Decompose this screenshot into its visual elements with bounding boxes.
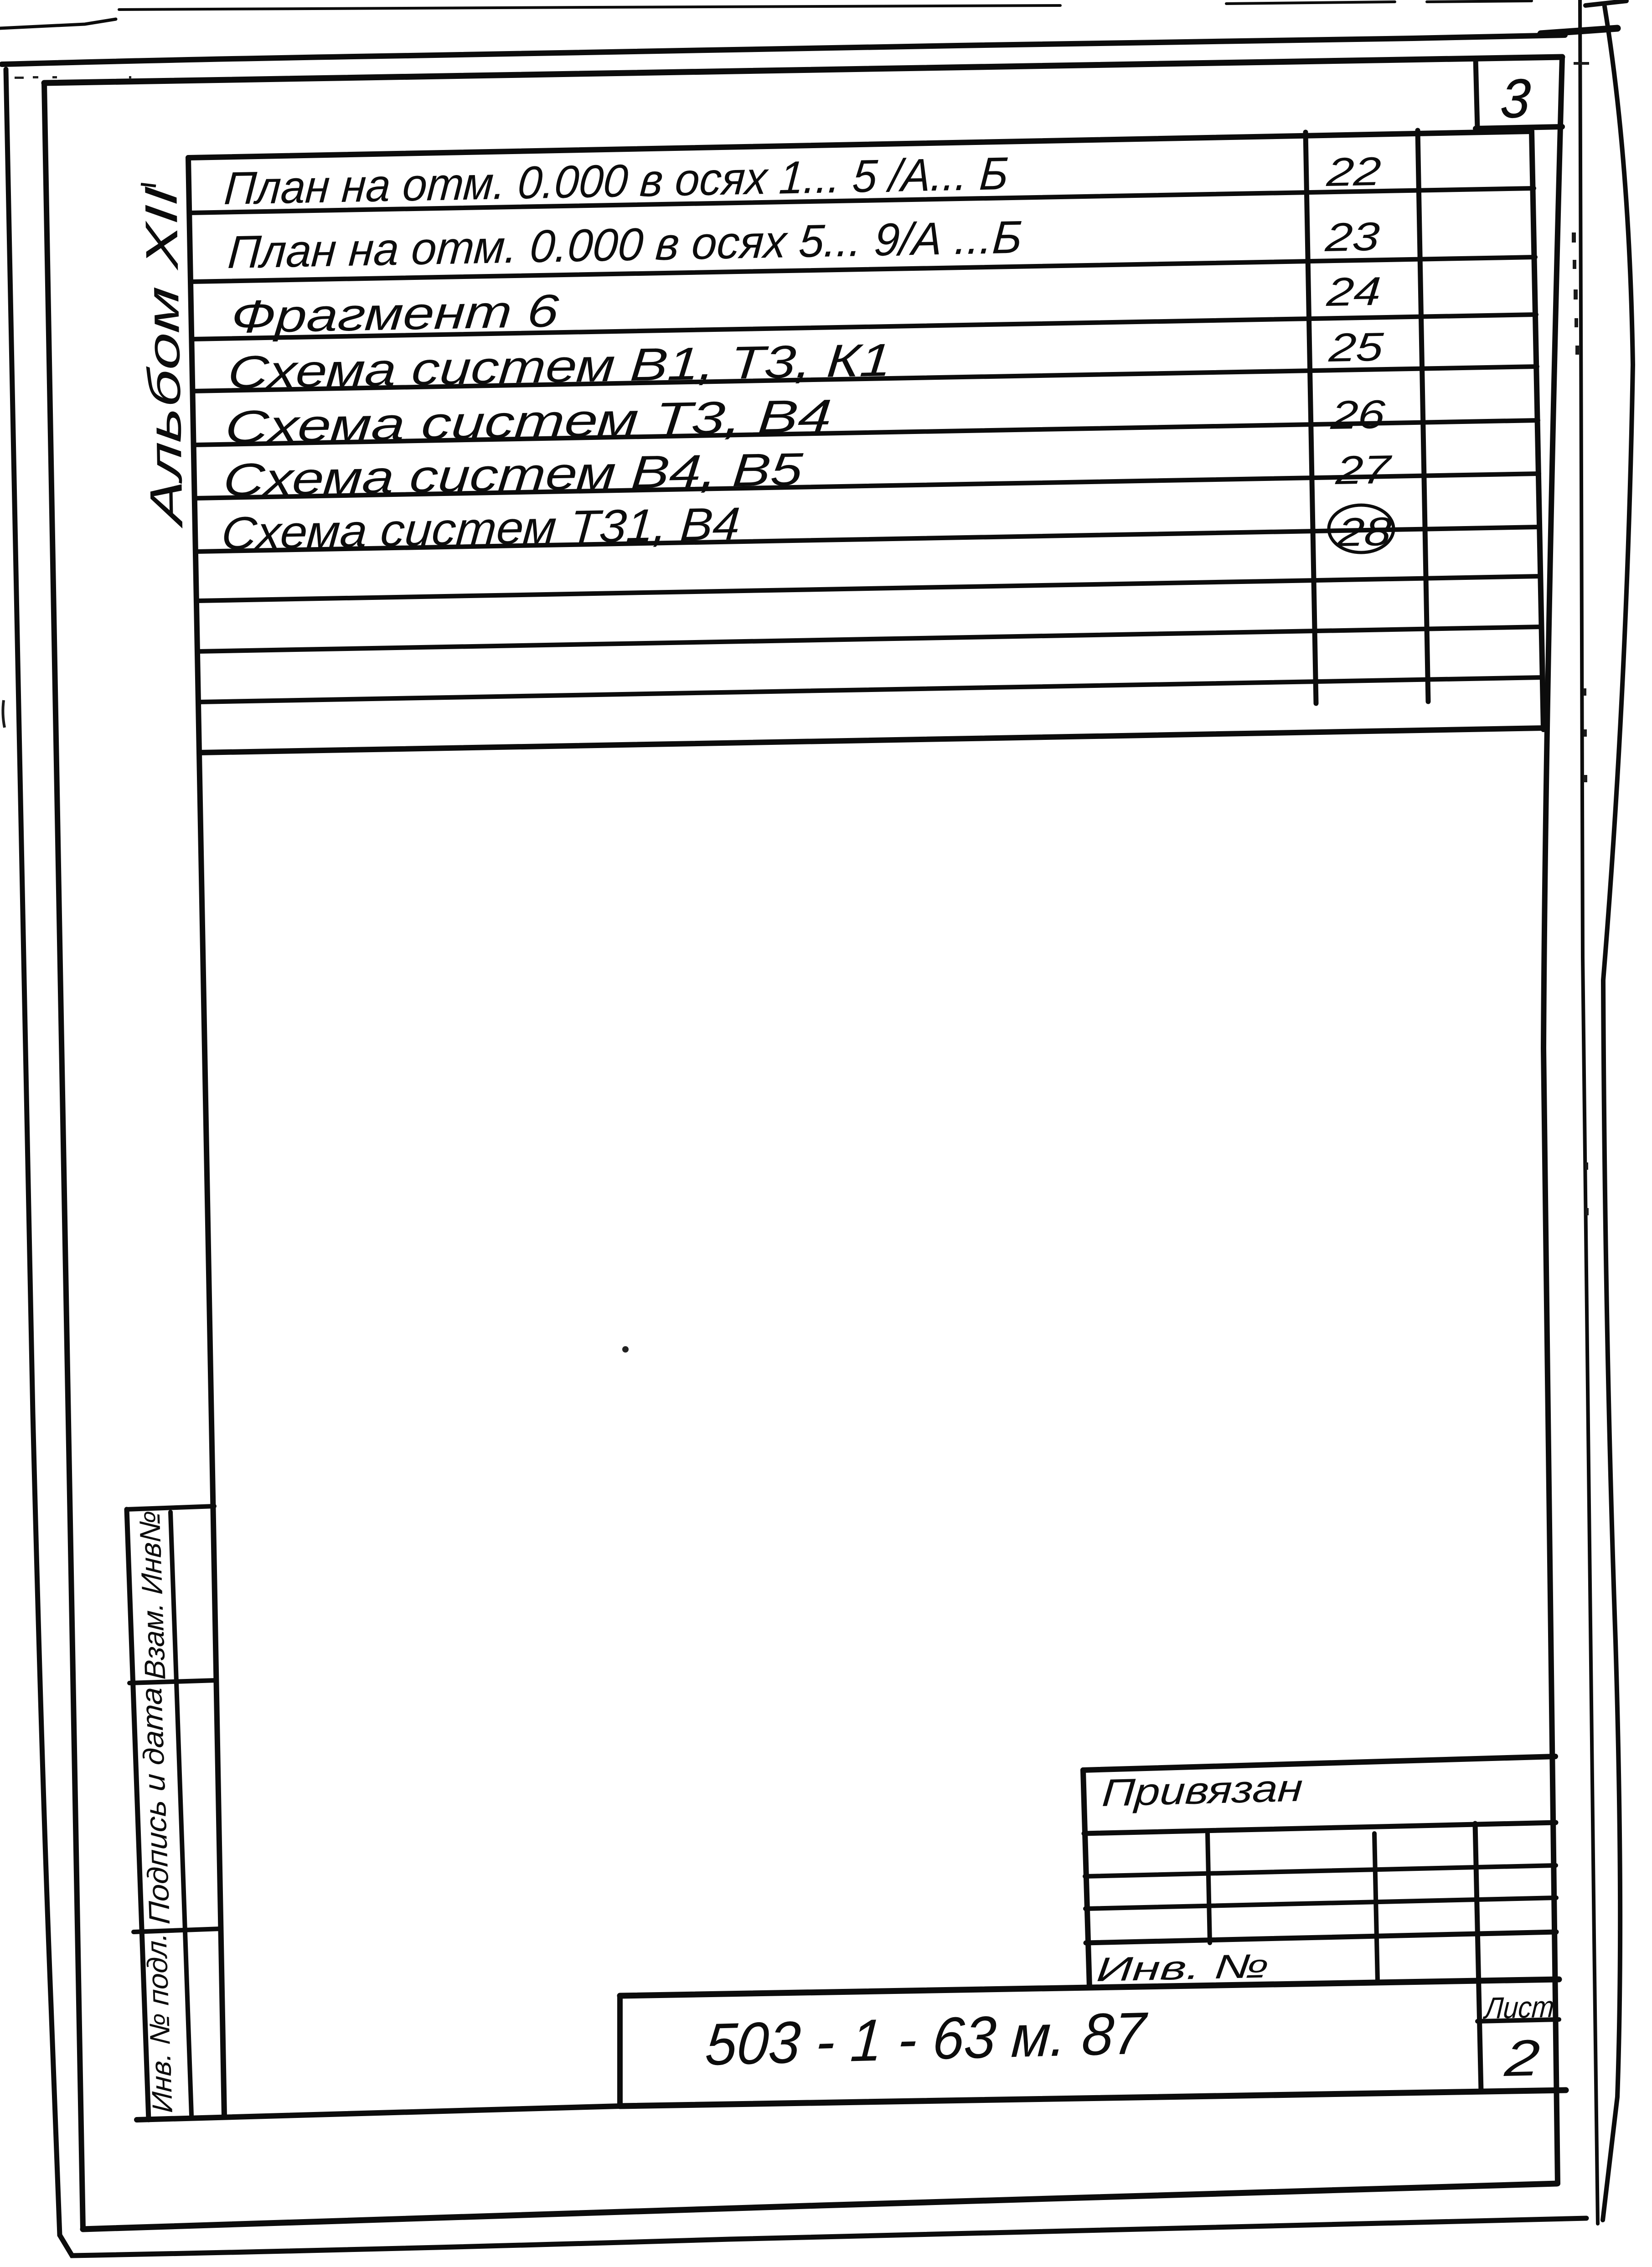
svg-text:Фрагмент 6: Фрагмент 6	[230, 285, 561, 343]
svg-text:26: 26	[1329, 392, 1387, 438]
svg-text:3: 3	[1499, 68, 1532, 129]
svg-text:Привязан: Привязан	[1101, 1766, 1304, 1814]
svg-text:2: 2	[1502, 2029, 1541, 2087]
svg-text:Альбом XII: Альбом XII	[135, 185, 192, 529]
svg-text:27: 27	[1334, 447, 1393, 493]
svg-text:План на отм. 0.000 в осях 1..: План на отм. 0.000 в осях 1... 5 /А... Б	[223, 148, 1010, 214]
svg-text:Схема систем В4, В5: Схема систем В4, В5	[222, 444, 805, 506]
svg-text:Инв. №: Инв. №	[1095, 1947, 1270, 1988]
svg-text:24: 24	[1325, 269, 1383, 315]
svg-text:25: 25	[1327, 324, 1385, 370]
svg-text:Инв. № подл.: Инв. № подл.	[141, 1932, 179, 2113]
svg-text:28: 28	[1336, 509, 1393, 555]
svg-text:23: 23	[1324, 214, 1381, 260]
svg-text:Взам. Инв№: Взам. Инв№	[133, 1510, 172, 1680]
svg-text:Схема систем Т31, В4: Схема систем Т31, В4	[220, 498, 742, 559]
svg-text:Схема систем Т3, В4: Схема систем Т3, В4	[224, 390, 833, 453]
svg-text:Лист: Лист	[1482, 1990, 1555, 2026]
svg-text:Схема систем В1, Т3, К1: Схема систем В1, Т3, К1	[227, 334, 893, 398]
svg-text:22: 22	[1325, 149, 1383, 195]
svg-text:503 - 1 - 63 м. 87: 503 - 1 - 63 м. 87	[703, 1999, 1149, 2077]
